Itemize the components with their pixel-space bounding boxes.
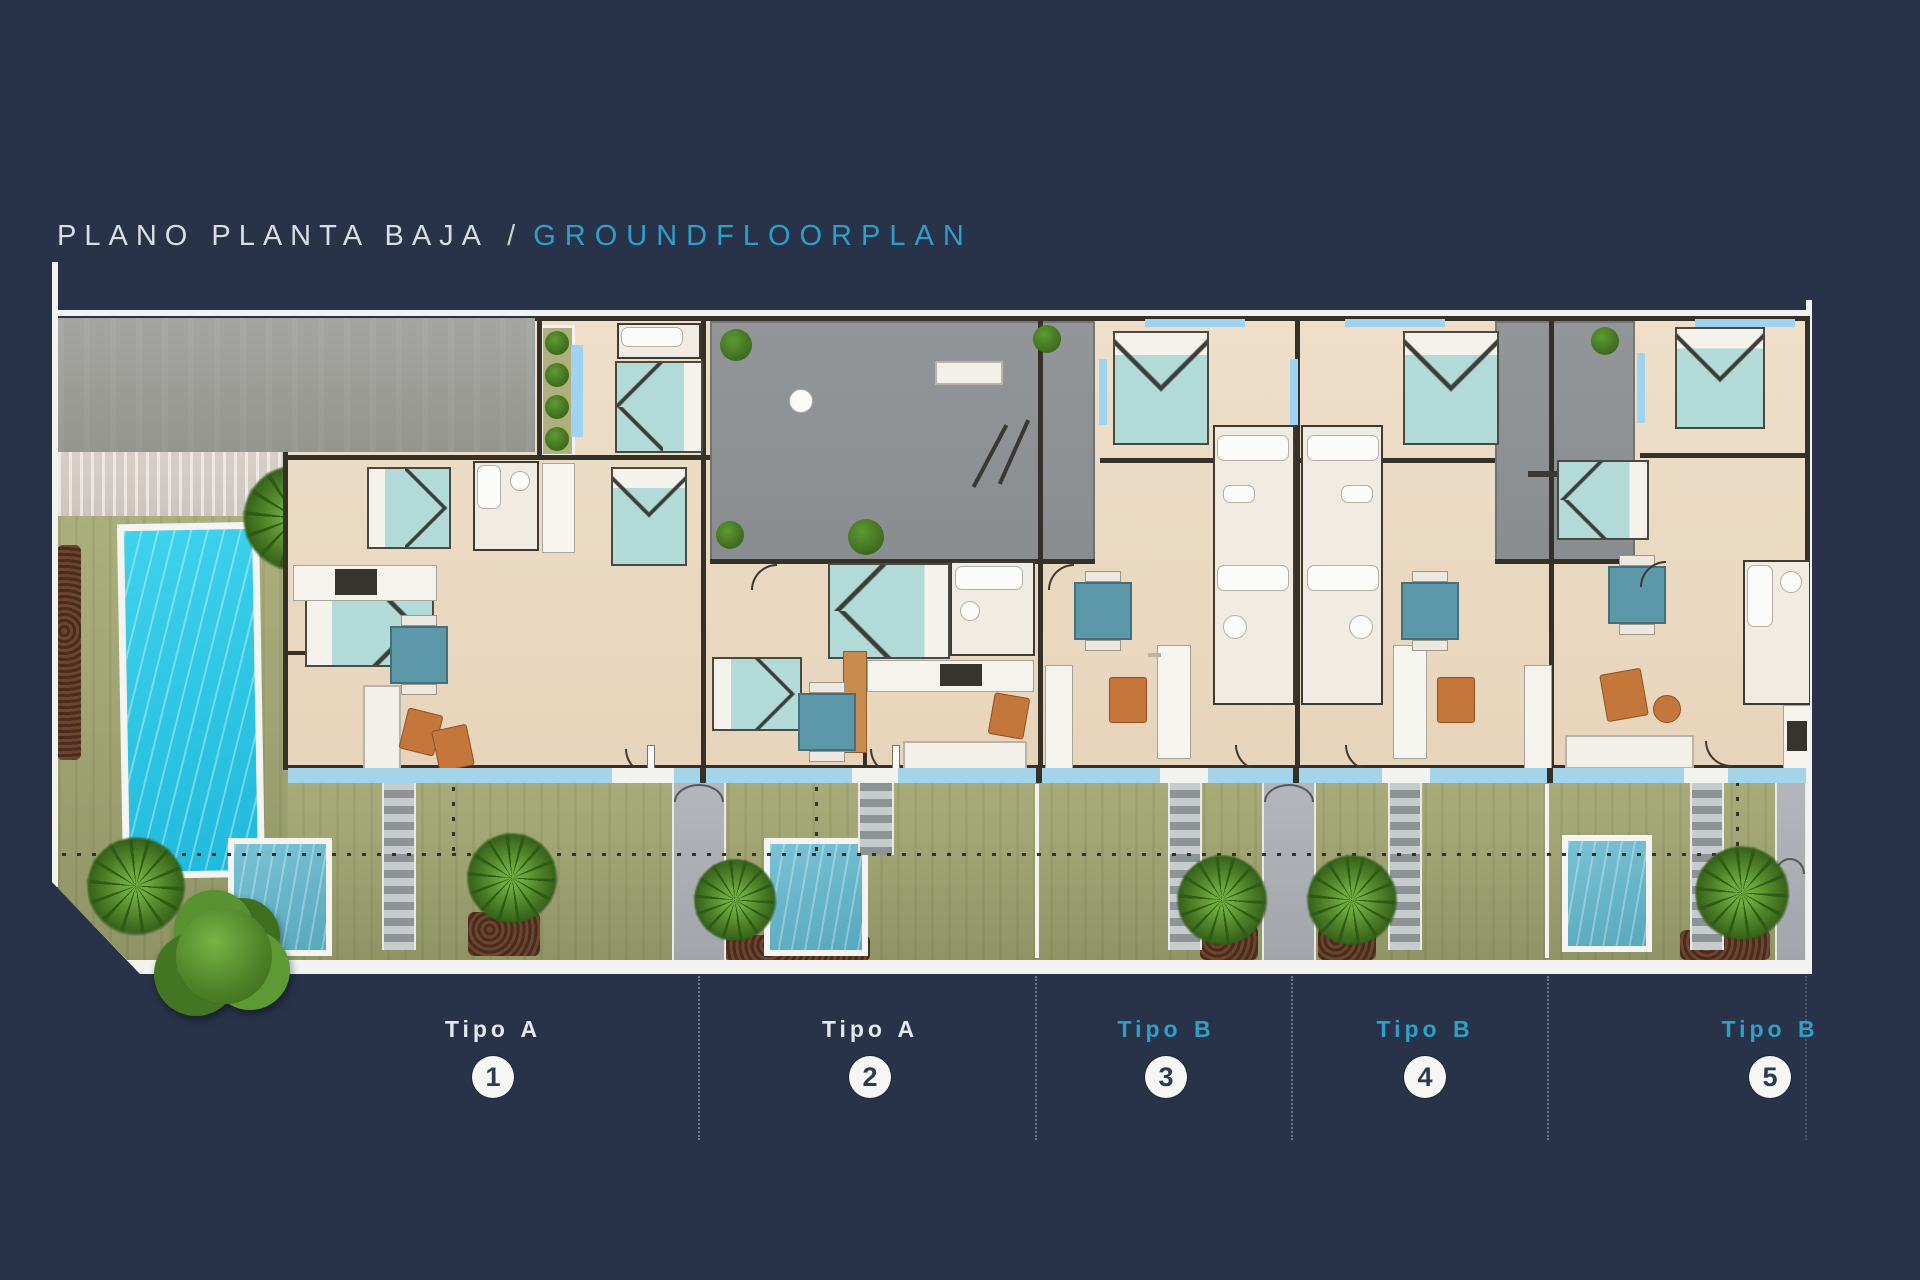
window bbox=[1695, 319, 1795, 327]
side-table-round bbox=[1653, 695, 1681, 723]
toilet bbox=[1223, 615, 1247, 639]
terrace-post bbox=[1293, 768, 1299, 783]
unit-number-badge: 1 bbox=[472, 1056, 514, 1098]
wall bbox=[1495, 559, 1635, 564]
bed bbox=[611, 467, 687, 566]
dining-table bbox=[1074, 582, 1132, 640]
unit-divider bbox=[1291, 976, 1293, 1140]
bathtub bbox=[955, 566, 1023, 590]
courtyard-plant bbox=[1591, 327, 1619, 355]
bathtub bbox=[1307, 435, 1379, 461]
palm-tree bbox=[466, 832, 558, 924]
bed bbox=[712, 657, 802, 731]
armchair bbox=[1437, 677, 1475, 723]
unit-label-5: Tipo B 5 bbox=[1670, 1016, 1870, 1098]
unit-type-label: Tipo B bbox=[1670, 1016, 1870, 1043]
courtyard-bench bbox=[935, 361, 1003, 385]
armchair bbox=[431, 724, 475, 773]
bathtub bbox=[1307, 565, 1379, 591]
toilet bbox=[1349, 615, 1373, 639]
stairs-unit1 bbox=[382, 782, 416, 950]
bed bbox=[615, 361, 703, 453]
bed bbox=[828, 563, 950, 659]
page-title: PLANO PLANTA BAJA / GROUNDFLOORPLAN bbox=[57, 220, 973, 253]
planter-bush bbox=[545, 363, 569, 387]
wall bbox=[288, 455, 542, 460]
unit-number-badge: 3 bbox=[1145, 1056, 1187, 1098]
kitchen-counter bbox=[1524, 665, 1552, 772]
dining-table bbox=[1401, 582, 1459, 640]
bathtub bbox=[477, 465, 501, 509]
wardrobe bbox=[1393, 645, 1427, 759]
terrace-gap bbox=[1160, 768, 1208, 783]
unit-label-2: Tipo A 2 bbox=[770, 1016, 970, 1098]
unit-type-label: Tipo B bbox=[1325, 1016, 1525, 1043]
door-arc bbox=[1705, 741, 1731, 767]
cooktop bbox=[335, 569, 377, 595]
courtyard-plant bbox=[1033, 325, 1061, 353]
courtyard-feature bbox=[789, 389, 813, 413]
plan-edge bbox=[58, 310, 1806, 316]
window bbox=[1290, 359, 1298, 425]
party-wall bbox=[1038, 321, 1043, 775]
unit-divider bbox=[1035, 976, 1037, 1140]
property-line bbox=[815, 772, 818, 853]
palm-tree bbox=[1176, 854, 1268, 946]
terrace-post bbox=[1036, 768, 1042, 783]
garden-separator bbox=[1545, 784, 1549, 958]
unit-number-badge: 2 bbox=[849, 1056, 891, 1098]
toilet bbox=[510, 471, 530, 491]
courtyard-plant bbox=[848, 519, 884, 555]
unit-divider bbox=[698, 976, 700, 1140]
terrace-gap bbox=[852, 768, 898, 783]
wardrobe bbox=[1157, 645, 1191, 759]
palm-tree bbox=[86, 836, 186, 936]
sofa bbox=[1148, 653, 1161, 657]
property-line bbox=[1736, 782, 1739, 853]
mulch-strip bbox=[57, 545, 81, 760]
terrace-strip bbox=[288, 768, 1806, 783]
main-pool bbox=[117, 522, 265, 879]
toilet bbox=[960, 601, 980, 621]
bed bbox=[367, 467, 451, 549]
unit-label-4: Tipo B 4 bbox=[1325, 1016, 1525, 1098]
title-secondary: GROUNDFLOORPLAN bbox=[533, 220, 973, 252]
armchair bbox=[1599, 668, 1649, 723]
kitchen-counter bbox=[1045, 665, 1073, 772]
unit-label-3: Tipo B 3 bbox=[1066, 1016, 1266, 1098]
dining-table bbox=[798, 693, 856, 751]
property-line bbox=[62, 853, 1736, 856]
unit-label-1: Tipo A 1 bbox=[393, 1016, 593, 1098]
terrace-gap bbox=[612, 768, 674, 783]
driveway bbox=[58, 318, 535, 452]
sink bbox=[1223, 485, 1255, 503]
terrace-gap bbox=[1684, 768, 1728, 783]
terrace-gap bbox=[1382, 768, 1430, 783]
property-line bbox=[452, 772, 455, 853]
toilet bbox=[1780, 571, 1802, 593]
window bbox=[571, 345, 583, 437]
courtyard-plant bbox=[720, 329, 752, 361]
unit-number-badge: 5 bbox=[1749, 1056, 1791, 1098]
armchair bbox=[988, 692, 1031, 740]
unit-number-badge: 4 bbox=[1404, 1056, 1446, 1098]
unit-type-label: Tipo B bbox=[1066, 1016, 1266, 1043]
tree bbox=[176, 908, 272, 1004]
sink bbox=[1341, 485, 1373, 503]
palm-tree bbox=[693, 858, 777, 942]
title-separator: / bbox=[507, 220, 515, 252]
window bbox=[1637, 353, 1645, 423]
dining-table bbox=[390, 626, 448, 684]
plan-edge bbox=[52, 960, 1812, 974]
planter-bush bbox=[545, 427, 569, 451]
palm-tree bbox=[1694, 845, 1790, 941]
window bbox=[1099, 359, 1107, 425]
window bbox=[1145, 319, 1245, 327]
courtyard-plant bbox=[716, 521, 744, 549]
window bbox=[1345, 319, 1445, 327]
door-arc bbox=[1048, 564, 1074, 590]
bathtub bbox=[1747, 565, 1773, 627]
title-main: PLANO PLANTA BAJA bbox=[57, 220, 489, 252]
wall bbox=[1640, 453, 1815, 458]
unit-type-label: Tipo A bbox=[393, 1016, 593, 1043]
wall bbox=[537, 321, 542, 457]
planter-bush bbox=[545, 395, 569, 419]
unit-type-label: Tipo A bbox=[770, 1016, 970, 1043]
bed bbox=[1113, 331, 1209, 445]
garden-separator bbox=[1035, 784, 1039, 958]
bathtub bbox=[1217, 565, 1289, 591]
planter-bush bbox=[545, 331, 569, 355]
palm-tree bbox=[1306, 854, 1398, 946]
cooktop bbox=[1787, 721, 1807, 751]
sofa bbox=[1565, 735, 1694, 769]
bed bbox=[1557, 460, 1649, 540]
cooktop bbox=[940, 664, 982, 686]
bed bbox=[1675, 327, 1765, 429]
terrace-post bbox=[1547, 768, 1553, 783]
walkway-units-3-4 bbox=[1262, 782, 1316, 962]
sofa bbox=[363, 685, 401, 779]
wall bbox=[540, 455, 710, 460]
plan-edge bbox=[52, 262, 58, 887]
bathtub bbox=[621, 327, 683, 347]
terrace-post bbox=[700, 768, 706, 783]
unit-divider bbox=[1547, 976, 1549, 1140]
stairs-unit4 bbox=[1388, 782, 1422, 950]
wardrobe bbox=[542, 463, 575, 553]
courtyard-feature bbox=[1528, 471, 1558, 477]
bed bbox=[1403, 331, 1499, 445]
bathtub bbox=[1217, 435, 1289, 461]
stairs-unit2 bbox=[858, 775, 894, 855]
armchair bbox=[1109, 677, 1147, 723]
door-arc bbox=[751, 564, 777, 590]
